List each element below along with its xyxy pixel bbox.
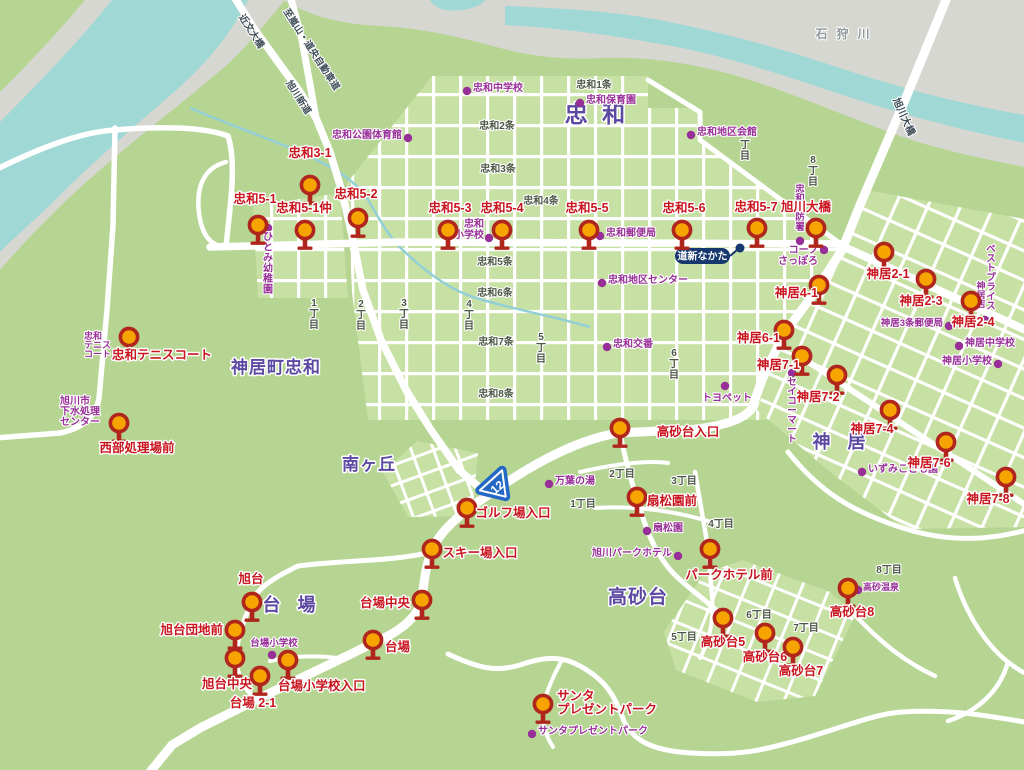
badge-label: 道新なかた <box>678 250 728 263</box>
poi-label: 神居中学校 <box>965 336 1016 349</box>
bus-stop-label: スキー場入口 <box>442 545 517 560</box>
pin-head <box>120 328 137 345</box>
pin-head <box>349 209 366 226</box>
bus-stop-label: 神居7-8 <box>966 491 1009 506</box>
pin-head <box>875 243 892 260</box>
pin-head <box>807 219 824 236</box>
bus-stop-label: 台場 2-1 <box>230 695 277 710</box>
bus-stop-label: 神居7-2 <box>796 389 839 404</box>
poi-dot <box>674 552 682 560</box>
area-label: 神居町忠和 <box>231 357 321 377</box>
pin-head <box>226 649 243 666</box>
district-label: 忠和7条 <box>478 335 515 348</box>
district-label: 4丁目 <box>708 518 734 530</box>
bus-stop-label: 忠和5-5 <box>565 200 608 215</box>
poi-dot <box>404 134 412 142</box>
poi-dot <box>858 468 866 476</box>
bus-stop-label: 旭台 <box>237 571 263 586</box>
poi-dot <box>796 237 804 245</box>
pin-head <box>628 488 645 505</box>
poi-label: 神居小学校 <box>942 354 993 367</box>
area-label: 高砂台 <box>608 585 668 608</box>
poi-dot <box>576 99 584 107</box>
poi-label: 高砂温泉 <box>863 581 900 592</box>
bus-stop-label: 神居7-6 <box>907 455 950 470</box>
bus-stop-label: 忠和5-2 <box>334 186 377 201</box>
poi-dot <box>485 234 493 242</box>
poi-label: 神居3条郵便局 <box>881 317 943 329</box>
pin-head <box>413 591 430 608</box>
pin-head <box>714 609 731 626</box>
poi-ひとみ幼稚園: ひとみ幼稚園 <box>263 224 273 296</box>
bus-stop-label: 神居7-4 <box>850 421 893 436</box>
poi-label: 忠和交番 <box>613 337 654 350</box>
poi-label: 忠和郵便局 <box>606 226 656 239</box>
district-label: 3丁目 <box>671 475 697 487</box>
poi-忠和公園体育館: 忠和公園体育館 <box>332 128 412 142</box>
bus-stop-label: 扇松園前 <box>647 493 698 508</box>
poi-label: 忠和地区センター <box>608 273 688 286</box>
poi-label: 旭川パークホテル <box>591 546 672 559</box>
poi-dot <box>721 382 729 390</box>
district-label: 忠和5条 <box>477 255 514 268</box>
pin-head <box>701 540 718 557</box>
bus-stop-label: 忠和5-1仲 <box>276 200 332 215</box>
bus-stop-label: 神居6-1 <box>737 330 780 345</box>
poi-label: 忠和公園体育館 <box>332 128 402 141</box>
bus-stop-label: 神居2-3 <box>899 293 942 308</box>
pin-head <box>673 221 690 238</box>
poi-label: 台場小学校 <box>250 637 298 649</box>
poi-dot <box>598 279 606 287</box>
poi-dot <box>545 480 553 488</box>
district-label: 2丁目 <box>609 468 635 480</box>
bus-stop-label: 神居2-4 <box>951 314 994 329</box>
bus-stop-label: 高砂台8 <box>830 604 875 619</box>
bus-stop-label: 高砂台5 <box>701 634 746 649</box>
river-name-label: 石狩川 <box>814 26 878 41</box>
bus-stop-label: 旭川大橋 <box>780 199 832 214</box>
bus-stop-label: 忠和5-6 <box>662 200 705 215</box>
area-label: 南ヶ丘 <box>342 454 396 474</box>
pin-head <box>937 433 954 450</box>
pin-head <box>828 366 845 383</box>
pin-head <box>881 401 898 418</box>
bus-stop-label: 旭台団地前 <box>159 622 223 637</box>
pin-head <box>279 651 296 668</box>
pin-head <box>997 468 1014 485</box>
pin-head <box>748 219 765 236</box>
bus-stop-label: 台場 <box>385 639 411 654</box>
poi-label: 忠和中学校 <box>473 81 524 94</box>
pin-head <box>423 540 440 557</box>
map-canvas: 忠 和神居町忠和南ヶ丘神 居台 場高砂台 忠和1条忠和2条忠和3条忠和4条忠和5… <box>0 0 1024 770</box>
poi-神居3条郵便局: 神居3条郵便局 <box>881 317 953 330</box>
district-label: 忠和1条 <box>576 78 613 91</box>
badge-dot <box>736 244 745 253</box>
poi-ベストプライス: ベストプライス <box>986 244 996 312</box>
poi-label: 忠和保育園 <box>586 93 636 106</box>
poi-旭川パークホテル: 旭川パークホテル <box>591 546 682 560</box>
bus-stop-label: パークホテル前 <box>685 567 773 582</box>
district-label: 7丁目 <box>793 622 819 634</box>
poi-dot <box>268 651 276 659</box>
bus-stop-label: 台場中央 <box>360 595 411 610</box>
poi-label: トヨペット <box>702 392 752 404</box>
pin-head <box>534 695 551 712</box>
bus-stop-label: 高砂台入口 <box>657 424 720 439</box>
pin-head <box>296 221 313 238</box>
bus-stop-label: 神居4-1 <box>775 285 818 300</box>
pin-head <box>110 414 127 431</box>
poi-セイコーマート: セイコーマート <box>787 369 797 445</box>
pin-head <box>756 624 773 641</box>
poi-label: ベストプライス <box>986 244 996 312</box>
bus-stop-label: 忠和5-7 <box>734 199 777 214</box>
poi-label: サンタプレゼントパーク <box>538 724 648 737</box>
district-label: 1丁目 <box>570 498 596 510</box>
pin-head <box>249 216 266 233</box>
poi-label: 万葉の湯 <box>554 474 595 487</box>
bus-stop-label: 西部処理場前 <box>99 440 175 455</box>
district-label: 忠和8条 <box>478 387 515 400</box>
pin-head <box>458 499 475 516</box>
bus-stop-label: 忠和5-4 <box>480 200 523 215</box>
bus-stop-label: ゴルフ場入口 <box>475 505 550 520</box>
district-label: 忠和2条 <box>479 119 516 132</box>
district-label: 5丁目 <box>671 631 697 643</box>
river-name-label: 石狩川 <box>814 26 878 41</box>
pin-head <box>364 631 381 648</box>
bus-stop-label: 忠和テニスコート <box>112 347 212 362</box>
bus-stop-label: 高砂台6 <box>743 649 788 664</box>
poi-label: 忠和地区会館 <box>697 125 757 138</box>
poi-label: セイコーマート <box>787 377 797 445</box>
poi-dot <box>955 342 963 350</box>
bus-stop-label: 台場小学校入口 <box>278 678 366 693</box>
poi-dot <box>994 360 1002 368</box>
pin-head <box>493 221 510 238</box>
pin-head <box>917 270 934 287</box>
pin-head <box>611 419 628 436</box>
poi-サンタプレゼントパーク: サンタプレゼントパーク <box>528 724 648 738</box>
pin-head <box>784 638 801 655</box>
poi-dot <box>687 131 695 139</box>
bus-stop-label: 忠和5-1 <box>233 191 276 206</box>
bus-stop-label: 旭台中央 <box>201 676 253 691</box>
pin-head <box>301 176 318 193</box>
area-label: 台 場 <box>262 594 321 615</box>
pin-head <box>251 667 268 684</box>
poi-dot <box>603 343 611 351</box>
bus-stop-label: 忠和5-3 <box>428 200 471 215</box>
district-label: 忠和3条 <box>480 162 517 175</box>
pin-head <box>243 593 260 610</box>
bus-stop-label: 神居7-1 <box>757 357 800 372</box>
district-label: 6丁目 <box>746 609 772 621</box>
pin-head <box>962 292 979 309</box>
district-label: 忠和6条 <box>477 286 514 299</box>
bus-stop-label: 高砂台7 <box>779 663 824 678</box>
district-label: 忠和4条 <box>523 194 560 207</box>
poi-dot <box>643 527 651 535</box>
district-label: 8丁目 <box>876 564 902 576</box>
bus-route-map: 忠 和神居町忠和南ヶ丘神 居台 場高砂台 忠和1条忠和2条忠和3条忠和4条忠和5… <box>0 0 1024 770</box>
bus-stop-label: 忠和3-1 <box>288 145 331 160</box>
pin-head <box>839 579 856 596</box>
poi-dot <box>463 87 471 95</box>
pin-head <box>226 621 243 638</box>
poi-忠和地区センター: 忠和地区センター <box>598 273 688 287</box>
pin-head <box>439 221 456 238</box>
poi-dot <box>528 730 536 738</box>
poi-忠和地区会館: 忠和地区会館 <box>687 125 757 139</box>
pin-head <box>580 221 597 238</box>
poi-label: 扇松園 <box>653 521 683 534</box>
bus-stop-label: 神居2-1 <box>866 266 909 281</box>
